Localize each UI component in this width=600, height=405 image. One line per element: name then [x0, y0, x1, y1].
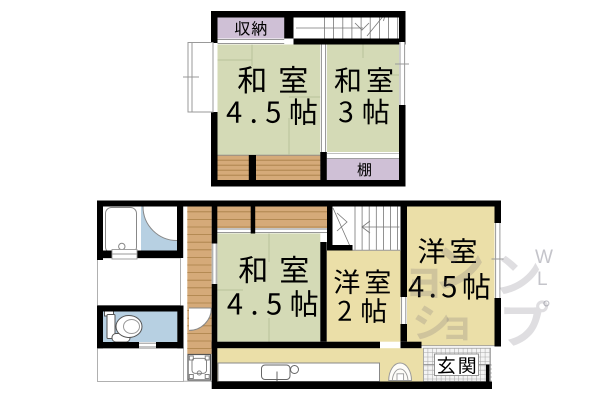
svg-text:L: L: [537, 269, 548, 290]
svg-text:°: °: [542, 296, 551, 321]
svg-text:W: W: [535, 247, 553, 268]
